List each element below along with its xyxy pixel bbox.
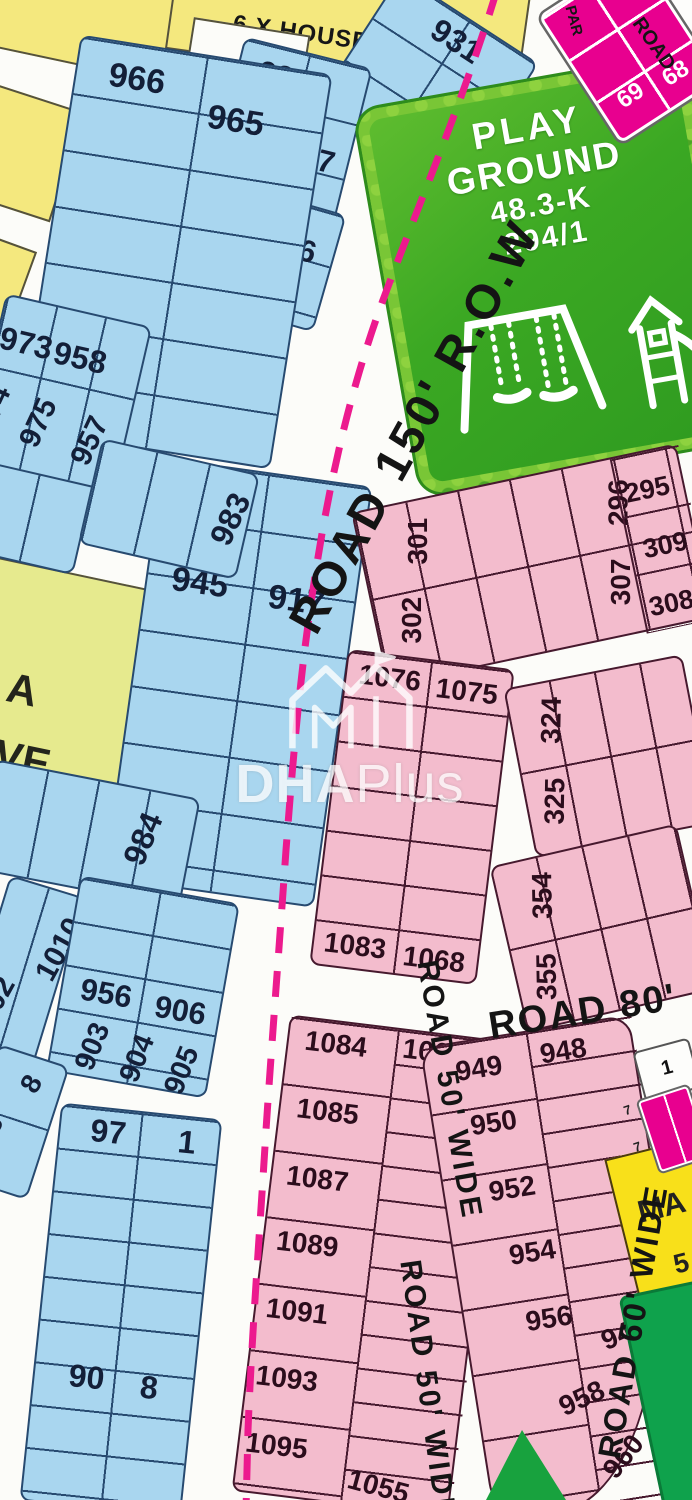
plot-label: 1087 [285, 1161, 350, 1196]
commercial-label-2: 5 [671, 1249, 692, 1279]
plot-label: 1095 [244, 1428, 309, 1463]
plot-label: 975 [15, 394, 63, 452]
plot-label: 1083 [322, 928, 387, 963]
plot-label: 973 [0, 321, 56, 364]
plot-label: 301 [404, 518, 432, 565]
reserve-label-a: A [3, 666, 41, 713]
plot-label: 984 [118, 808, 168, 870]
plot-label: 1084 [303, 1027, 368, 1062]
plot-label: 956 [78, 973, 134, 1013]
plot-label: 1076 [357, 661, 422, 696]
plot-label: 1 [659, 1057, 675, 1079]
plot-map: 6 X HOUSE 931 932 934 927 935 926 966 96… [0, 0, 692, 1500]
plot-label: 906 [152, 991, 208, 1031]
plot-label: 8 [138, 1371, 159, 1405]
plot-label: 69 [613, 78, 648, 113]
plot-label: 958 [51, 336, 110, 379]
plot-label: 1093 [254, 1361, 319, 1396]
plot-label: 1 [176, 1125, 197, 1159]
plot-label: 302 [398, 597, 426, 644]
plot-label: 1075 [434, 674, 499, 709]
plot-label: 950 [468, 1105, 519, 1140]
plot-label: 325 [541, 778, 570, 825]
plot-label: 1091 [264, 1294, 329, 1329]
plot-label: 952 [487, 1171, 538, 1206]
plot-label: 1089 [275, 1227, 340, 1262]
plot-label: 97 [89, 1114, 128, 1150]
plot-label: 965 [205, 100, 266, 142]
plot-label: 902 [0, 972, 21, 1030]
plot-label: 98 [0, 1111, 9, 1152]
plot-label: 354 [528, 872, 557, 919]
plot-label: 974 [0, 381, 17, 439]
plot-label: 1085 [295, 1094, 360, 1129]
plot-block-956-906[interactable]: 956 906 903 904 905 [46, 875, 240, 1098]
plot-label: 8 [15, 1070, 47, 1097]
slide-icon [612, 282, 692, 418]
plot-label: 355 [532, 953, 561, 1000]
plot-label: 324 [537, 697, 566, 744]
plot-label: 954 [507, 1235, 558, 1270]
plot-label: 905 [160, 1043, 205, 1099]
plot-label: 90 [67, 1359, 106, 1395]
plot-label: 307 [607, 559, 635, 606]
plot-block-97-1[interactable]: 97 1 90 8 [20, 1103, 223, 1500]
plot-label: 966 [106, 58, 167, 100]
plot-label: 904 [115, 1031, 160, 1087]
plot-label: 903 [71, 1019, 116, 1075]
plot-label: 956 [524, 1301, 575, 1336]
